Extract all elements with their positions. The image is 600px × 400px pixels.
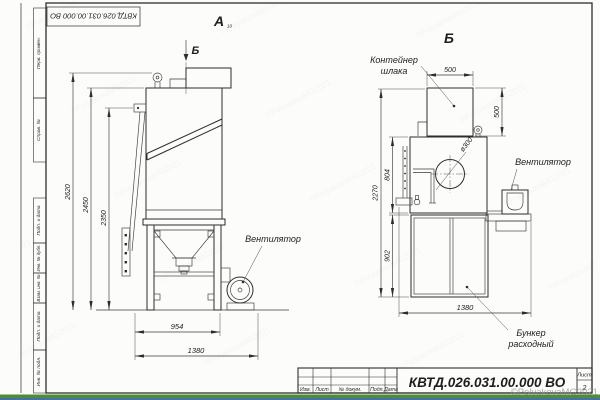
stamp-label-inv-podl: Инв. № подл. — [36, 357, 42, 387]
bunker-label-2: расходный — [507, 339, 553, 349]
stamp-label-podp-data-1: Подп. и дата — [36, 205, 42, 235]
title-col-podp: Подп. — [370, 387, 384, 393]
stamp-label-inv-dubl: Инв. № дубл. — [36, 244, 41, 271]
view-b-title: Б — [444, 30, 454, 46]
dim-902: 902 — [385, 250, 392, 262]
dim-2270: 2270 — [373, 185, 380, 202]
view-a-label: А — [213, 13, 224, 29]
title-col-izm: Изм. — [300, 387, 311, 393]
title-col-list: Лист — [314, 387, 329, 393]
stamp-label-podp-data-2: Подп. и дата — [36, 311, 42, 341]
dim-954: 954 — [171, 322, 184, 331]
dim-2450: 2450 — [83, 197, 90, 214]
stamp-label-sprav-n: Справ. № — [36, 119, 42, 141]
title-col-dokum: № докум. — [339, 387, 362, 393]
watermark-layer — [22, 3, 594, 393]
dim-1380-right: 1380 — [457, 303, 475, 312]
dim-2350: 2350 — [101, 210, 108, 227]
stamp-label-perv-primen: Перв. примен. — [36, 37, 42, 69]
dim-2620: 2620 — [65, 184, 72, 201]
stamp-label-vzam-inv: Взам. инв. № — [36, 274, 41, 301]
bottom-green-strip — [0, 395, 600, 399]
dim-1380-left: 1380 — [188, 346, 206, 355]
title-col-data: Дата — [383, 387, 398, 393]
section-b-arrow-label: Б — [192, 45, 200, 57]
bunker-label-1: Бункер — [516, 328, 545, 338]
fan-left-label: Вентилятор — [245, 234, 301, 244]
drawing-sheet-svg: ©PolyakovaMG2021 Перв. примен. Справ. № … — [0, 0, 600, 400]
sheet-label: Лист — [576, 373, 592, 379]
dim-500-height: 500 — [494, 106, 501, 118]
drawing-sheet: ©PolyakovaMG2021 Перв. примен. Справ. № … — [0, 0, 600, 400]
doc-number-top: КВТД.026.031.00.000 ВО — [50, 12, 137, 21]
dim-804: 804 — [385, 169, 392, 181]
slag-container-label-1: Контейнер — [370, 55, 418, 65]
slag-container-label-2: шлака — [381, 66, 408, 76]
fan-right-label: Вентилятор — [515, 157, 571, 167]
view-a-sub: 10 — [227, 24, 232, 29]
dim-500-width: 500 — [444, 67, 456, 74]
